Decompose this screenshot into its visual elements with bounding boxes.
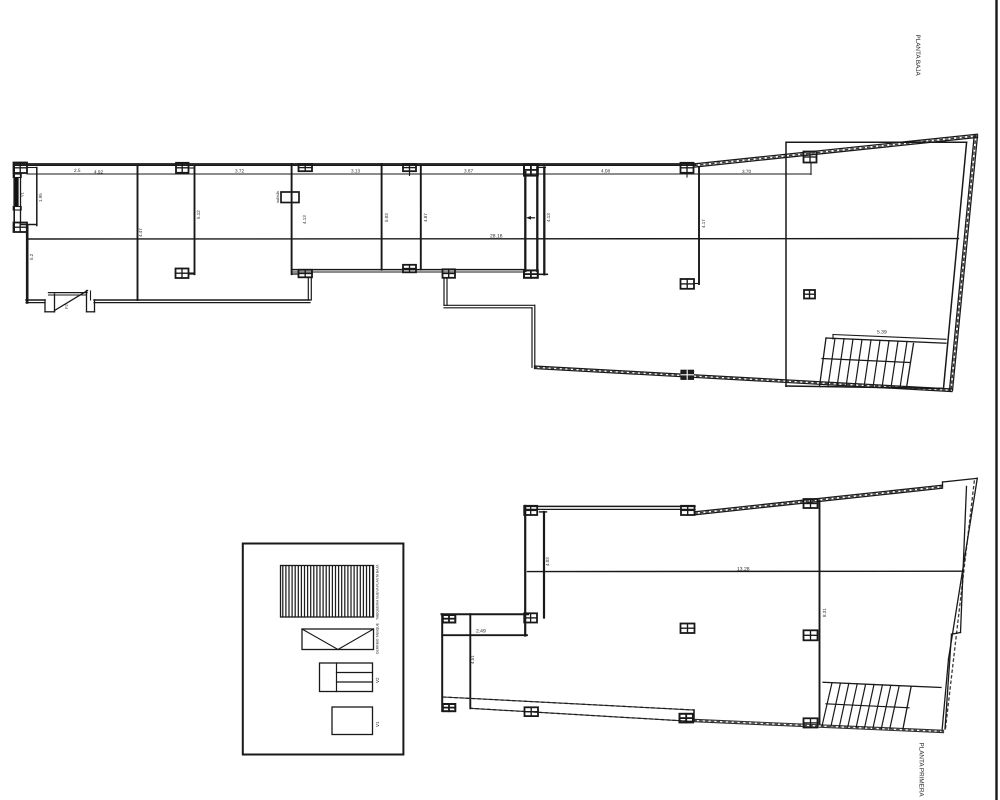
svg-text:TABIQUERIA NUEVA PLANTA BAJA: TABIQUERIA NUEVA PLANTA BAJA bbox=[376, 564, 380, 620]
svg-text:V1: V1 bbox=[20, 191, 25, 197]
svg-text:4.08: 4.08 bbox=[601, 169, 611, 174]
svg-text:4.47: 4.47 bbox=[138, 228, 143, 237]
svg-text:DERRIBO TABIQUE: DERRIBO TABIQUE bbox=[376, 622, 380, 654]
svg-text:1.95: 1.95 bbox=[38, 193, 43, 202]
svg-text:3.13: 3.13 bbox=[351, 169, 361, 174]
svg-text:4.13: 4.13 bbox=[546, 213, 551, 222]
svg-text:4.51: 4.51 bbox=[470, 655, 475, 664]
svg-text:V2: V2 bbox=[375, 677, 380, 683]
svg-text:subida: subida bbox=[275, 190, 280, 203]
svg-text:28.16: 28.16 bbox=[490, 234, 503, 240]
svg-text:5.03: 5.03 bbox=[384, 213, 389, 222]
svg-text:3.72: 3.72 bbox=[235, 169, 245, 174]
svg-text:2.49: 2.49 bbox=[476, 629, 486, 635]
svg-text:4.03: 4.03 bbox=[545, 557, 550, 566]
svg-text:F2: F2 bbox=[64, 304, 69, 309]
svg-text:PLANTA PRIMERA: PLANTA PRIMERA bbox=[918, 743, 925, 798]
svg-text:5.39: 5.39 bbox=[877, 330, 887, 336]
svg-text:4.13: 4.13 bbox=[302, 215, 307, 224]
svg-text:5.12: 5.12 bbox=[196, 210, 201, 219]
svg-text:5.2: 5.2 bbox=[29, 253, 34, 260]
svg-text:13.28: 13.28 bbox=[737, 567, 750, 573]
svg-text:3.67: 3.67 bbox=[464, 169, 474, 174]
svg-text:PLANTA BAJA: PLANTA BAJA bbox=[914, 35, 921, 77]
svg-text:4.87: 4.87 bbox=[423, 213, 428, 222]
svg-text:4.92: 4.92 bbox=[94, 170, 104, 175]
svg-text:4.17: 4.17 bbox=[701, 219, 706, 228]
svg-text:3.70: 3.70 bbox=[742, 169, 752, 174]
svg-text:2.5: 2.5 bbox=[74, 168, 81, 173]
svg-text:8.31: 8.31 bbox=[822, 608, 827, 617]
svg-text:V1: V1 bbox=[375, 721, 380, 727]
